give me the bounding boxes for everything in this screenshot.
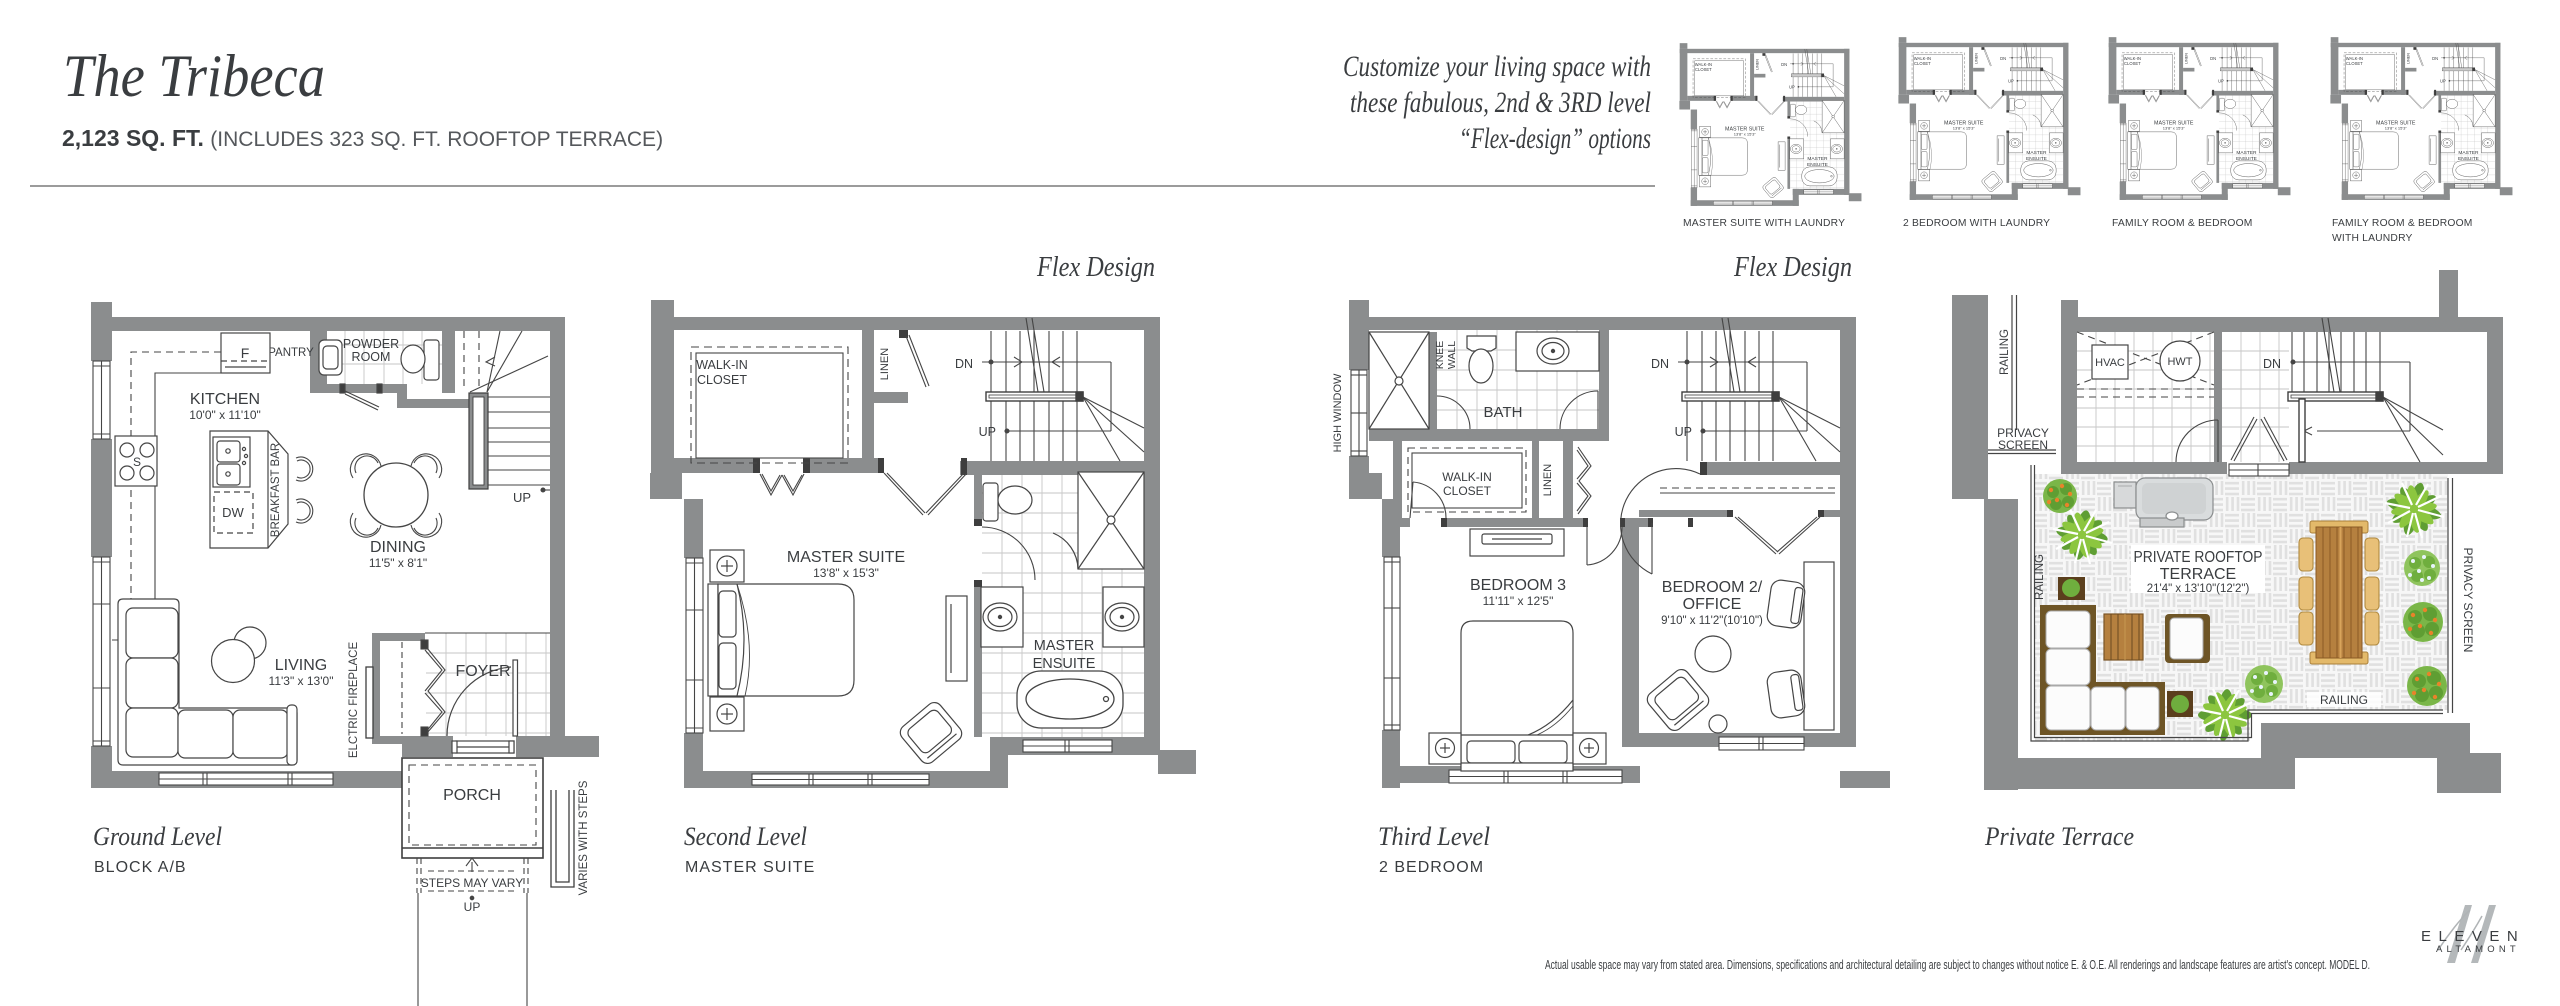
svg-text:DN: DN	[955, 357, 973, 371]
svg-text:Customize your living space wi: Customize your living space with	[1343, 50, 1651, 83]
svg-text:CLOSET: CLOSET	[697, 373, 747, 387]
svg-text:MASTER: MASTER	[1034, 638, 1094, 654]
svg-text:ALTAMONT: ALTAMONT	[2436, 944, 2520, 955]
svg-text:F: F	[241, 345, 250, 361]
svg-text:UP: UP	[513, 490, 531, 505]
svg-text:“Flex-design” options: “Flex-design” options	[1459, 122, 1651, 155]
svg-text:UP: UP	[979, 425, 996, 439]
svg-text:LINEN: LINEN	[1542, 464, 1554, 496]
svg-text:11'5" x 8'1": 11'5" x 8'1"	[369, 556, 427, 570]
svg-text:BLOCK A/B: BLOCK A/B	[94, 859, 187, 876]
svg-text:CLOSET: CLOSET	[1443, 484, 1492, 498]
svg-text:2,123 SQ. FT. (INCLUDES 323 SQ: 2,123 SQ. FT. (INCLUDES 323 SQ. FT. ROOF…	[62, 125, 663, 151]
svg-text:RAILING: RAILING	[2034, 554, 2046, 600]
svg-text:DN: DN	[2263, 357, 2281, 371]
svg-text:ROOM: ROOM	[352, 350, 391, 364]
svg-text:11'11" x 12'5": 11'11" x 12'5"	[1483, 594, 1554, 608]
svg-text:ELEVEN: ELEVEN	[2421, 928, 2525, 945]
svg-text:these fabulous, 2nd & 3RD leve: these fabulous, 2nd & 3RD level	[1350, 86, 1651, 119]
svg-text:UP: UP	[1675, 425, 1692, 439]
svg-text:MASTER SUITE: MASTER SUITE	[685, 859, 815, 876]
svg-text:2 BEDROOM WITH LAUNDRY: 2 BEDROOM WITH LAUNDRY	[1903, 218, 2050, 229]
svg-text:HWT: HWT	[2167, 356, 2192, 368]
svg-text:WITH LAUNDRY: WITH LAUNDRY	[2332, 233, 2413, 244]
svg-text:TERRACE: TERRACE	[2160, 566, 2236, 583]
svg-text:DN: DN	[1651, 357, 1669, 371]
svg-text:BREAKFAST BAR: BREAKFAST BAR	[270, 443, 282, 537]
svg-text:2 BEDROOM: 2 BEDROOM	[1379, 859, 1484, 876]
svg-text:Flex Design: Flex Design	[1036, 251, 1155, 283]
svg-text:FOYER: FOYER	[455, 663, 510, 680]
svg-text:WALK-IN: WALK-IN	[1442, 470, 1492, 484]
svg-text:HIGH WINDOW: HIGH WINDOW	[1332, 373, 1344, 452]
svg-text:9'10" x 11'2"(10'10"): 9'10" x 11'2"(10'10")	[1661, 615, 1763, 627]
svg-text:MASTER SUITE: MASTER SUITE	[787, 549, 905, 566]
svg-text:Third Level: Third Level	[1378, 822, 1490, 851]
svg-text:13'8" x 15'3": 13'8" x 15'3"	[813, 566, 879, 580]
svg-text:UP: UP	[464, 900, 481, 914]
svg-text:ENSUITE: ENSUITE	[1033, 656, 1096, 672]
svg-text:DINING: DINING	[370, 539, 426, 556]
svg-text:10'0" x 11'10": 10'0" x 11'10"	[189, 408, 261, 422]
svg-text:S: S	[133, 455, 141, 469]
svg-text:BEDROOM 3: BEDROOM 3	[1470, 577, 1566, 594]
svg-text:ELCTRIC FIREPLACE: ELCTRIC FIREPLACE	[348, 642, 360, 759]
svg-text:Private Terrace: Private Terrace	[1984, 822, 2134, 851]
svg-text:KNEE: KNEE	[1434, 341, 1446, 370]
svg-text:HVAC: HVAC	[2095, 357, 2125, 369]
svg-text:BEDROOM 2/: BEDROOM 2/	[1662, 579, 1763, 596]
svg-text:MASTER SUITE WITH LAUNDRY: MASTER SUITE WITH LAUNDRY	[1683, 218, 1845, 229]
svg-text:Flex Design: Flex Design	[1733, 251, 1852, 283]
svg-text:DW: DW	[222, 505, 244, 520]
svg-text:POWDER: POWDER	[343, 337, 399, 351]
svg-text:The Tribeca: The Tribeca	[63, 43, 325, 109]
svg-text:WALK-IN: WALK-IN	[696, 358, 748, 372]
svg-text:PANTRY: PANTRY	[268, 347, 314, 359]
svg-text:21'4" x 13'10"(12'2"): 21'4" x 13'10"(12'2")	[2147, 583, 2250, 595]
svg-text:LIVING: LIVING	[275, 657, 327, 674]
svg-text:BATH: BATH	[1484, 404, 1523, 421]
svg-text:PRIVATE ROOFTOP: PRIVATE ROOFTOP	[2134, 549, 2263, 566]
svg-text:VARIES WITH STEPS: VARIES WITH STEPS	[578, 780, 590, 895]
svg-text:KITCHEN: KITCHEN	[190, 391, 260, 408]
svg-text:Actual usable space may vary f: Actual usable space may vary from stated…	[1545, 957, 2370, 972]
svg-text:RAILING: RAILING	[2320, 693, 2368, 707]
svg-text:Ground Level: Ground Level	[93, 822, 222, 851]
svg-text:11'3" x 13'0": 11'3" x 13'0"	[269, 674, 334, 688]
svg-text:Second Level: Second Level	[684, 822, 807, 851]
svg-text:WALL: WALL	[1446, 341, 1458, 369]
svg-text:LINEN: LINEN	[879, 348, 891, 380]
svg-text:PORCH: PORCH	[443, 787, 501, 804]
svg-text:PRIVACY SCREEN: PRIVACY SCREEN	[2461, 548, 2475, 653]
svg-text:STEPS MAY VARY: STEPS MAY VARY	[421, 876, 523, 890]
svg-text:SCREEN: SCREEN	[1998, 438, 2048, 452]
svg-text:FAMILY ROOM & BEDROOM: FAMILY ROOM & BEDROOM	[2112, 218, 2253, 229]
svg-text:FAMILY ROOM & BEDROOM: FAMILY ROOM & BEDROOM	[2332, 218, 2473, 229]
svg-text:OFFICE: OFFICE	[1683, 596, 1742, 613]
svg-text:RAILING: RAILING	[1999, 329, 2011, 375]
